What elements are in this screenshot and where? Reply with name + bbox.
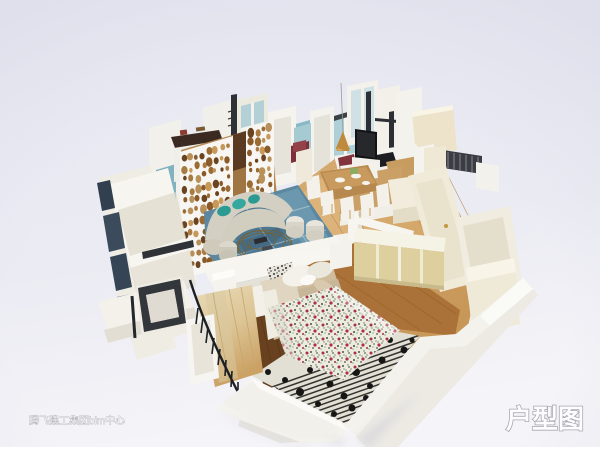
svg-text:户型图: 户型图 (506, 404, 584, 434)
svg-text:腾飞建工集团bim中心: 腾飞建工集团bim中心 (29, 414, 125, 427)
